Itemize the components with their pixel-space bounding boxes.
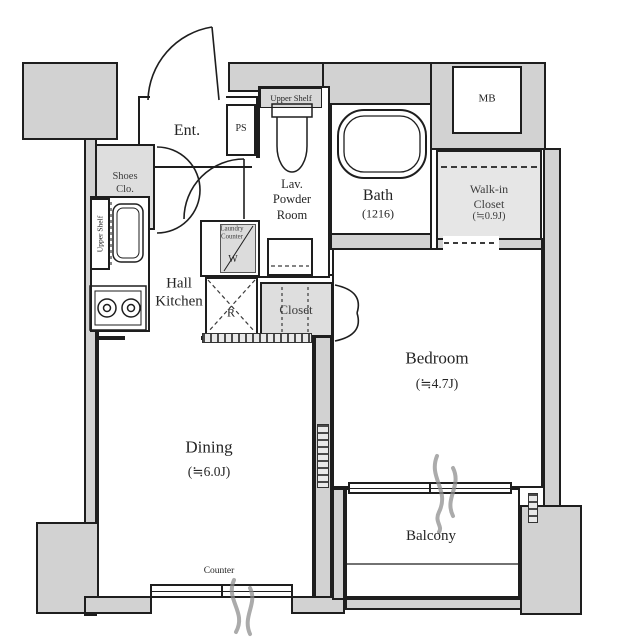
shoes-closet-label: Shoes Clo. bbox=[112, 171, 137, 197]
powder-label-line3: Room bbox=[273, 208, 311, 223]
walkin-size-label: (≒0.9J) bbox=[470, 211, 508, 224]
walkin-label-line1: Walk-in bbox=[470, 182, 508, 197]
wall-balcony-bottom bbox=[345, 598, 522, 610]
window-dining-counter bbox=[150, 584, 293, 598]
walkin-label-line2: Closet bbox=[470, 197, 508, 212]
opening-walkin bbox=[443, 236, 499, 250]
bedroom-size-label: (≒4.7J) bbox=[416, 376, 458, 392]
bedroom-label: Bedroom bbox=[405, 349, 468, 370]
walkin-closet-label: Walk-in Closet (≒0.9J) bbox=[470, 182, 508, 224]
wall-top-band-bath bbox=[322, 62, 432, 105]
wall-bottom-left bbox=[84, 596, 152, 614]
shoes-closet-label-line1: Shoes bbox=[112, 171, 137, 184]
bath-size-label: (1216) bbox=[362, 207, 394, 222]
powder-label-line1: Lav. bbox=[273, 177, 311, 192]
dining-size-label: (≒6.0J) bbox=[188, 464, 230, 480]
powder-room-label: Lav. Powder Room bbox=[273, 177, 311, 223]
sliding-door-dining-bedroom bbox=[317, 424, 329, 488]
meter-box-label: MB bbox=[478, 92, 495, 105]
laundry-label-line2: Counter bbox=[220, 234, 243, 242]
washbasin-box bbox=[267, 238, 313, 276]
shoes-closet-label-line2: Clo. bbox=[112, 184, 137, 197]
balcony-label: Balcony bbox=[406, 527, 456, 545]
window-bedroom-balcony bbox=[348, 482, 512, 494]
hall-kitchen-label: Hall Kitchen bbox=[155, 275, 202, 312]
opening-entrance bbox=[150, 92, 226, 102]
wall-right bbox=[543, 148, 561, 508]
opening-powder-door bbox=[252, 158, 264, 220]
dining-label: Dining bbox=[185, 438, 232, 459]
hall-label-line1: Hall bbox=[155, 275, 202, 293]
kitchen-label-line2: Kitchen bbox=[155, 293, 202, 311]
entrance-door-arc bbox=[148, 27, 219, 100]
closet-label: Closet bbox=[279, 302, 312, 318]
opening-kitchen-dining bbox=[125, 332, 201, 344]
pipe-shaft-label: PS bbox=[235, 123, 246, 135]
counter-label: Counter bbox=[204, 566, 235, 578]
floor-plan: Ent. PS Shoes Clo. Upper Shelf Hall Kitc… bbox=[0, 0, 640, 640]
window-sash-line bbox=[350, 488, 510, 489]
vent-hatch-right-wall bbox=[528, 493, 538, 523]
refrigerator-mark: R bbox=[227, 306, 235, 321]
sliding-door-hall-dining bbox=[202, 333, 312, 343]
laundry-label-line1: Laundry bbox=[220, 226, 243, 234]
wall-balcony-left bbox=[332, 488, 345, 600]
entrance-label: Ent. bbox=[174, 121, 200, 141]
kitchen-upper-shelf-label: Upper Shelf bbox=[95, 216, 104, 252]
wall-top-left-block bbox=[22, 62, 118, 140]
laundry-label: Laundry Counter bbox=[220, 226, 243, 243]
powder-label-line2: Powder bbox=[273, 192, 311, 207]
washer-mark: W bbox=[228, 254, 237, 266]
powder-upper-shelf-label: Upper Shelf bbox=[270, 93, 311, 103]
window-sash-line bbox=[152, 591, 291, 592]
bath-label: Bath bbox=[363, 186, 393, 206]
